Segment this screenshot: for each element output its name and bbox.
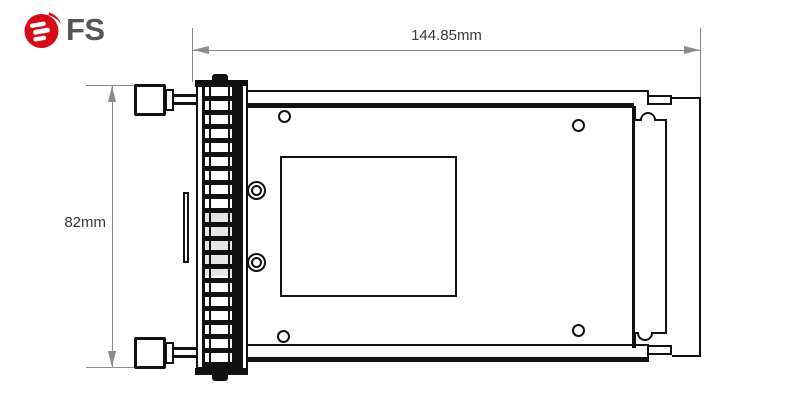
thumbscrew-top-shaft — [173, 94, 197, 105]
width-dimension-label: 144.85mm — [193, 28, 700, 44]
screw-hole-bottom-right — [572, 324, 585, 337]
thumbscrew-bottom-knob — [134, 337, 166, 369]
height-dimension-line — [112, 86, 113, 367]
fs-watermark — [204, 212, 233, 276]
top-rail-end-tab — [647, 95, 672, 105]
front-panel-top-tab — [212, 74, 228, 80]
fs-logo: FS — [22, 10, 105, 50]
top-rail-inner-line — [247, 103, 634, 108]
thumbscrew-bottom-shaft — [173, 347, 197, 358]
bottom-rail-end-tab — [647, 345, 672, 355]
front-panel-inner-bar — [233, 85, 241, 369]
width-extension-line-right — [700, 28, 701, 98]
pull-handle-plate — [183, 192, 189, 263]
height-dimension-label: 82mm — [36, 215, 106, 231]
height-arrow-up-icon — [108, 86, 116, 102]
technical-drawing-page: FS 144.85mm 82mm — [0, 0, 800, 404]
width-arrow-left-icon — [193, 46, 209, 54]
captive-screw-upper-inner — [251, 185, 262, 196]
label-recess-area — [280, 156, 457, 297]
module-front-edge — [241, 84, 248, 370]
bottom-rail-outer-line — [247, 357, 649, 362]
screw-hole-top-left — [278, 110, 291, 123]
top-rail-outer-line — [247, 90, 649, 92]
captive-screw-lower-inner — [251, 257, 262, 268]
width-arrow-right-icon — [684, 46, 700, 54]
host-connector-block — [633, 119, 667, 334]
connector-bump-top — [640, 112, 656, 121]
height-extension-line-bottom — [86, 367, 141, 368]
screw-hole-bottom-left — [277, 330, 290, 343]
fs-logo-mark-icon — [22, 10, 62, 50]
connector-bump-bottom — [637, 332, 653, 341]
width-dimension-line — [193, 50, 700, 51]
thumbscrew-top-knob — [134, 84, 166, 116]
height-arrow-down-icon — [108, 351, 116, 367]
front-panel-bottom-tab — [212, 375, 228, 381]
rear-edge-outline — [672, 97, 701, 357]
fs-logo-text: FS — [66, 10, 105, 50]
screw-hole-top-right — [572, 119, 585, 132]
bottom-rail-inner-line — [247, 344, 649, 346]
